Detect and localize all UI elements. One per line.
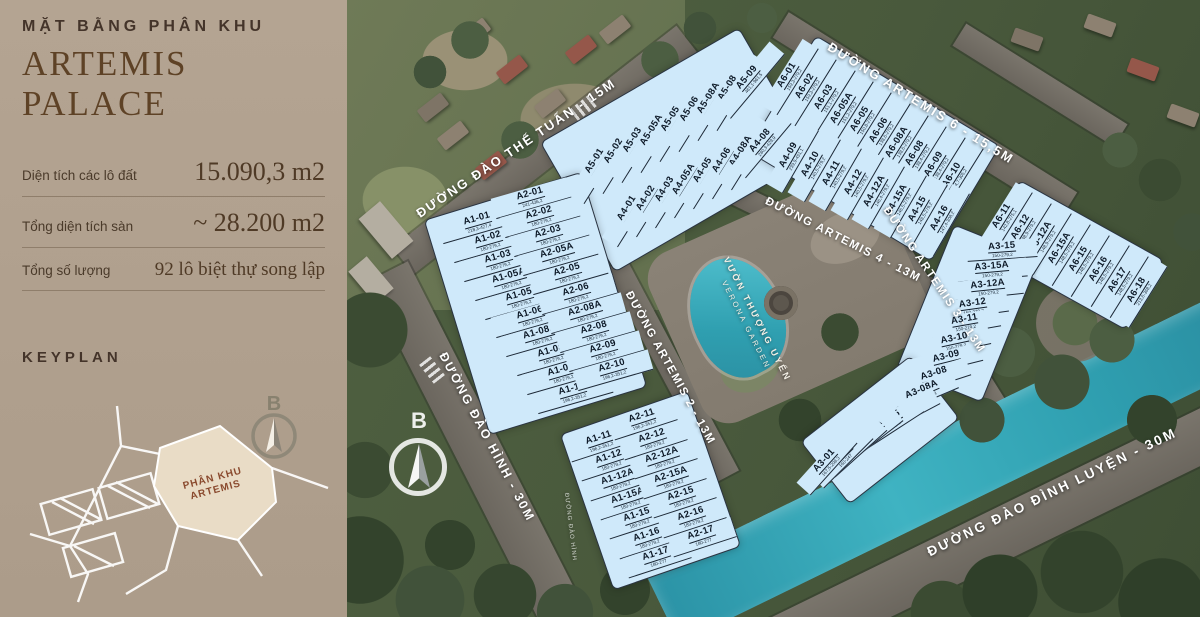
- keyplan-map: PHÂN KHU ARTEMIS B: [8, 388, 338, 613]
- stat-value: ~ 28.200 m2: [193, 208, 325, 238]
- stat-label: Tổng số lượng: [22, 263, 110, 278]
- keyplan-compass: B: [253, 393, 295, 457]
- stat-value: 92 lô biệt thự song lập: [155, 259, 325, 281]
- masterplan-poster: A1-01218,3-427,4A1-02180-279,2A1-03180-2…: [0, 0, 1200, 617]
- stat-row-floor-area: Tổng diện tích sàn ~ 28.200 m2: [22, 197, 325, 248]
- north-letter: B: [383, 408, 455, 434]
- keyplan-heading: KEYPLAN: [22, 349, 325, 366]
- north-compass: B: [383, 408, 455, 508]
- svg-text:B: B: [267, 393, 281, 415]
- lot-area: 150-279,2: [992, 253, 1013, 259]
- project-title: ARTEMIS PALACE: [22, 44, 325, 124]
- stat-value: 15.090,3 m2: [194, 157, 325, 187]
- stat-row-land-area: Diện tích các lô đất 15.090,3 m2: [22, 146, 325, 197]
- stat-label: Diện tích các lô đất: [22, 168, 137, 183]
- plan-subtitle: MẶT BẰNG PHÂN KHU: [22, 18, 325, 36]
- stat-row-total-units: Tổng số lượng 92 lô biệt thự song lập: [22, 248, 325, 291]
- stat-label: Tổng diện tích sàn: [22, 219, 133, 234]
